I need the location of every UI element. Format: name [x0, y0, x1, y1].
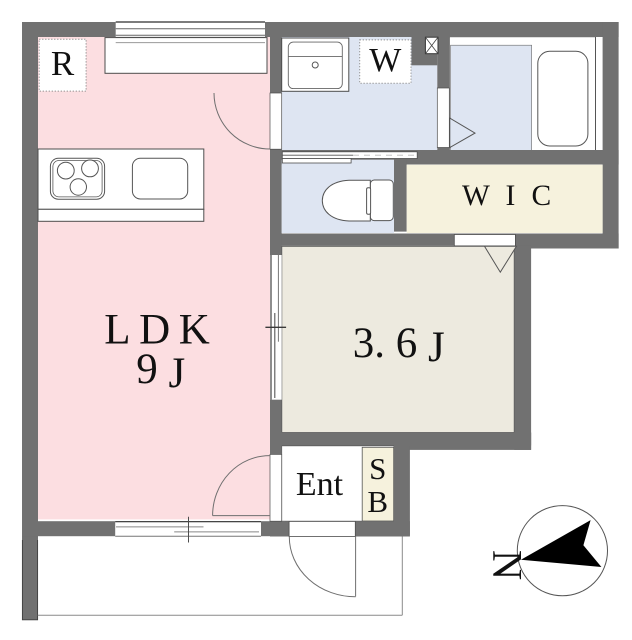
svg-text:B: B — [367, 484, 388, 519]
svg-text:R: R — [51, 44, 75, 83]
svg-text:W: W — [369, 42, 402, 79]
svg-text:3. 6 J: 3. 6 J — [353, 320, 445, 371]
svg-text:N: N — [483, 550, 529, 580]
svg-text:W I C: W I C — [462, 180, 556, 212]
svg-text:S: S — [369, 451, 386, 486]
svg-text:Ent: Ent — [296, 466, 344, 503]
svg-text:9 J: 9 J — [136, 346, 185, 397]
